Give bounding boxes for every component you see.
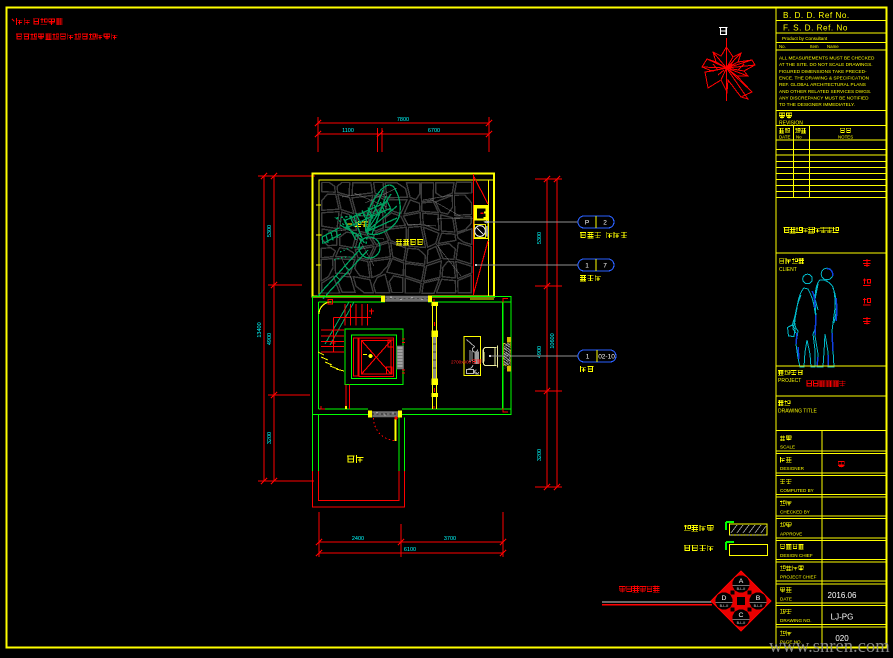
svg-text:DESIGNER: DESIGNER bbox=[780, 466, 805, 471]
svg-text:10600: 10600 bbox=[550, 333, 556, 348]
svg-text:B-L-II: B-L-II bbox=[754, 604, 763, 608]
svg-text:A: A bbox=[739, 578, 744, 585]
svg-text:ENCE. THE DRAWING & SPECIFICAT: ENCE. THE DRAWING & SPECIFICATION bbox=[779, 76, 869, 81]
svg-text:DRAWING TITLE: DRAWING TITLE bbox=[778, 409, 818, 415]
svg-text:4900: 4900 bbox=[267, 333, 273, 345]
svg-text:7: 7 bbox=[603, 263, 607, 270]
svg-text:DATE: DATE bbox=[779, 135, 790, 140]
svg-text:1: 1 bbox=[586, 354, 590, 361]
svg-text:1100: 1100 bbox=[342, 128, 354, 134]
svg-text:No.: No. bbox=[779, 44, 786, 49]
svg-text:DRAWING NO.: DRAWING NO. bbox=[780, 618, 811, 623]
svg-text:7800: 7800 bbox=[397, 117, 409, 123]
svg-text:No: No bbox=[796, 135, 802, 140]
svg-text:DATE: DATE bbox=[780, 596, 792, 601]
svg-text:CLIENT: CLIENT bbox=[779, 267, 797, 273]
svg-text:2: 2 bbox=[603, 220, 607, 227]
svg-text:B-L-II: B-L-II bbox=[720, 604, 729, 608]
svg-text:6700: 6700 bbox=[428, 128, 440, 134]
svg-text:LJ-PG: LJ-PG bbox=[831, 613, 854, 622]
svg-text:PROJECT: PROJECT bbox=[778, 378, 801, 384]
svg-text:AT THE SITE. DO NOT SCALE DRAW: AT THE SITE. DO NOT SCALE DRAWINGS. bbox=[779, 62, 873, 67]
svg-text:2016.06: 2016.06 bbox=[828, 591, 857, 600]
svg-text:AND OTHER RELATED SERVICES DWG: AND OTHER RELATED SERVICES DWGS. bbox=[779, 89, 871, 94]
svg-text:13400: 13400 bbox=[257, 322, 263, 337]
svg-text:6100: 6100 bbox=[404, 547, 416, 553]
svg-text:B-L-II: B-L-II bbox=[737, 621, 746, 625]
svg-text:NOTES: NOTES bbox=[838, 135, 853, 140]
svg-text:F. S. D. Ref. No: F. S. D. Ref. No bbox=[783, 24, 848, 33]
svg-text:5300: 5300 bbox=[267, 225, 273, 237]
svg-text:DESIGN CHIEF: DESIGN CHIEF bbox=[780, 553, 813, 558]
svg-text:3200: 3200 bbox=[267, 432, 273, 444]
svg-text:P: P bbox=[585, 220, 589, 227]
svg-text:REF. GLOBAL ARCHITECTURAL PLAN: REF. GLOBAL ARCHITECTURAL PLANS bbox=[779, 82, 866, 87]
svg-text:APPROVE: APPROVE bbox=[780, 531, 802, 536]
svg-text:3700: 3700 bbox=[444, 536, 456, 542]
svg-text:Name: Name bbox=[827, 44, 839, 49]
svg-text:www.snren.com: www.snren.com bbox=[769, 636, 890, 657]
svg-text:FIGURED DIMENSIONS TAKE PRECED: FIGURED DIMENSIONS TAKE PRECED- bbox=[779, 69, 867, 74]
svg-text:02-10: 02-10 bbox=[598, 354, 615, 361]
svg-text:D: D bbox=[722, 595, 727, 602]
svg-text:CHECKED BY: CHECKED BY bbox=[780, 510, 810, 515]
svg-text:Item: Item bbox=[810, 44, 819, 49]
svg-text:B-L-II: B-L-II bbox=[737, 587, 746, 591]
svg-text:5300: 5300 bbox=[537, 232, 543, 244]
svg-text:B: B bbox=[756, 595, 761, 602]
svg-text:SCALE: SCALE bbox=[780, 445, 795, 450]
svg-text:3200: 3200 bbox=[537, 449, 543, 461]
svg-text:C: C bbox=[739, 612, 744, 619]
svg-text:PROJECT CHIEF: PROJECT CHIEF bbox=[780, 575, 817, 580]
svg-text:2400: 2400 bbox=[352, 536, 364, 542]
svg-text:1: 1 bbox=[585, 263, 589, 270]
svg-text:COMPUTED BY: COMPUTED BY bbox=[780, 488, 814, 493]
svg-text:B. D. D. Ref No.: B. D. D. Ref No. bbox=[783, 11, 850, 20]
svg-text:ALL MEASUREMENTS MUST BE CHECK: ALL MEASUREMENTS MUST BE CHECKED bbox=[779, 56, 875, 61]
svg-text:TO THE DESIGNER IMMEDIATELY.: TO THE DESIGNER IMMEDIATELY. bbox=[779, 102, 855, 107]
svg-text:ANY DISCREPANCY MUST BE NOTIFI: ANY DISCREPANCY MUST BE NOTIFIED bbox=[779, 95, 869, 100]
svg-text:Product by Consultant: Product by Consultant bbox=[782, 36, 828, 41]
svg-text:2700x900: 2700x900 bbox=[451, 360, 472, 365]
